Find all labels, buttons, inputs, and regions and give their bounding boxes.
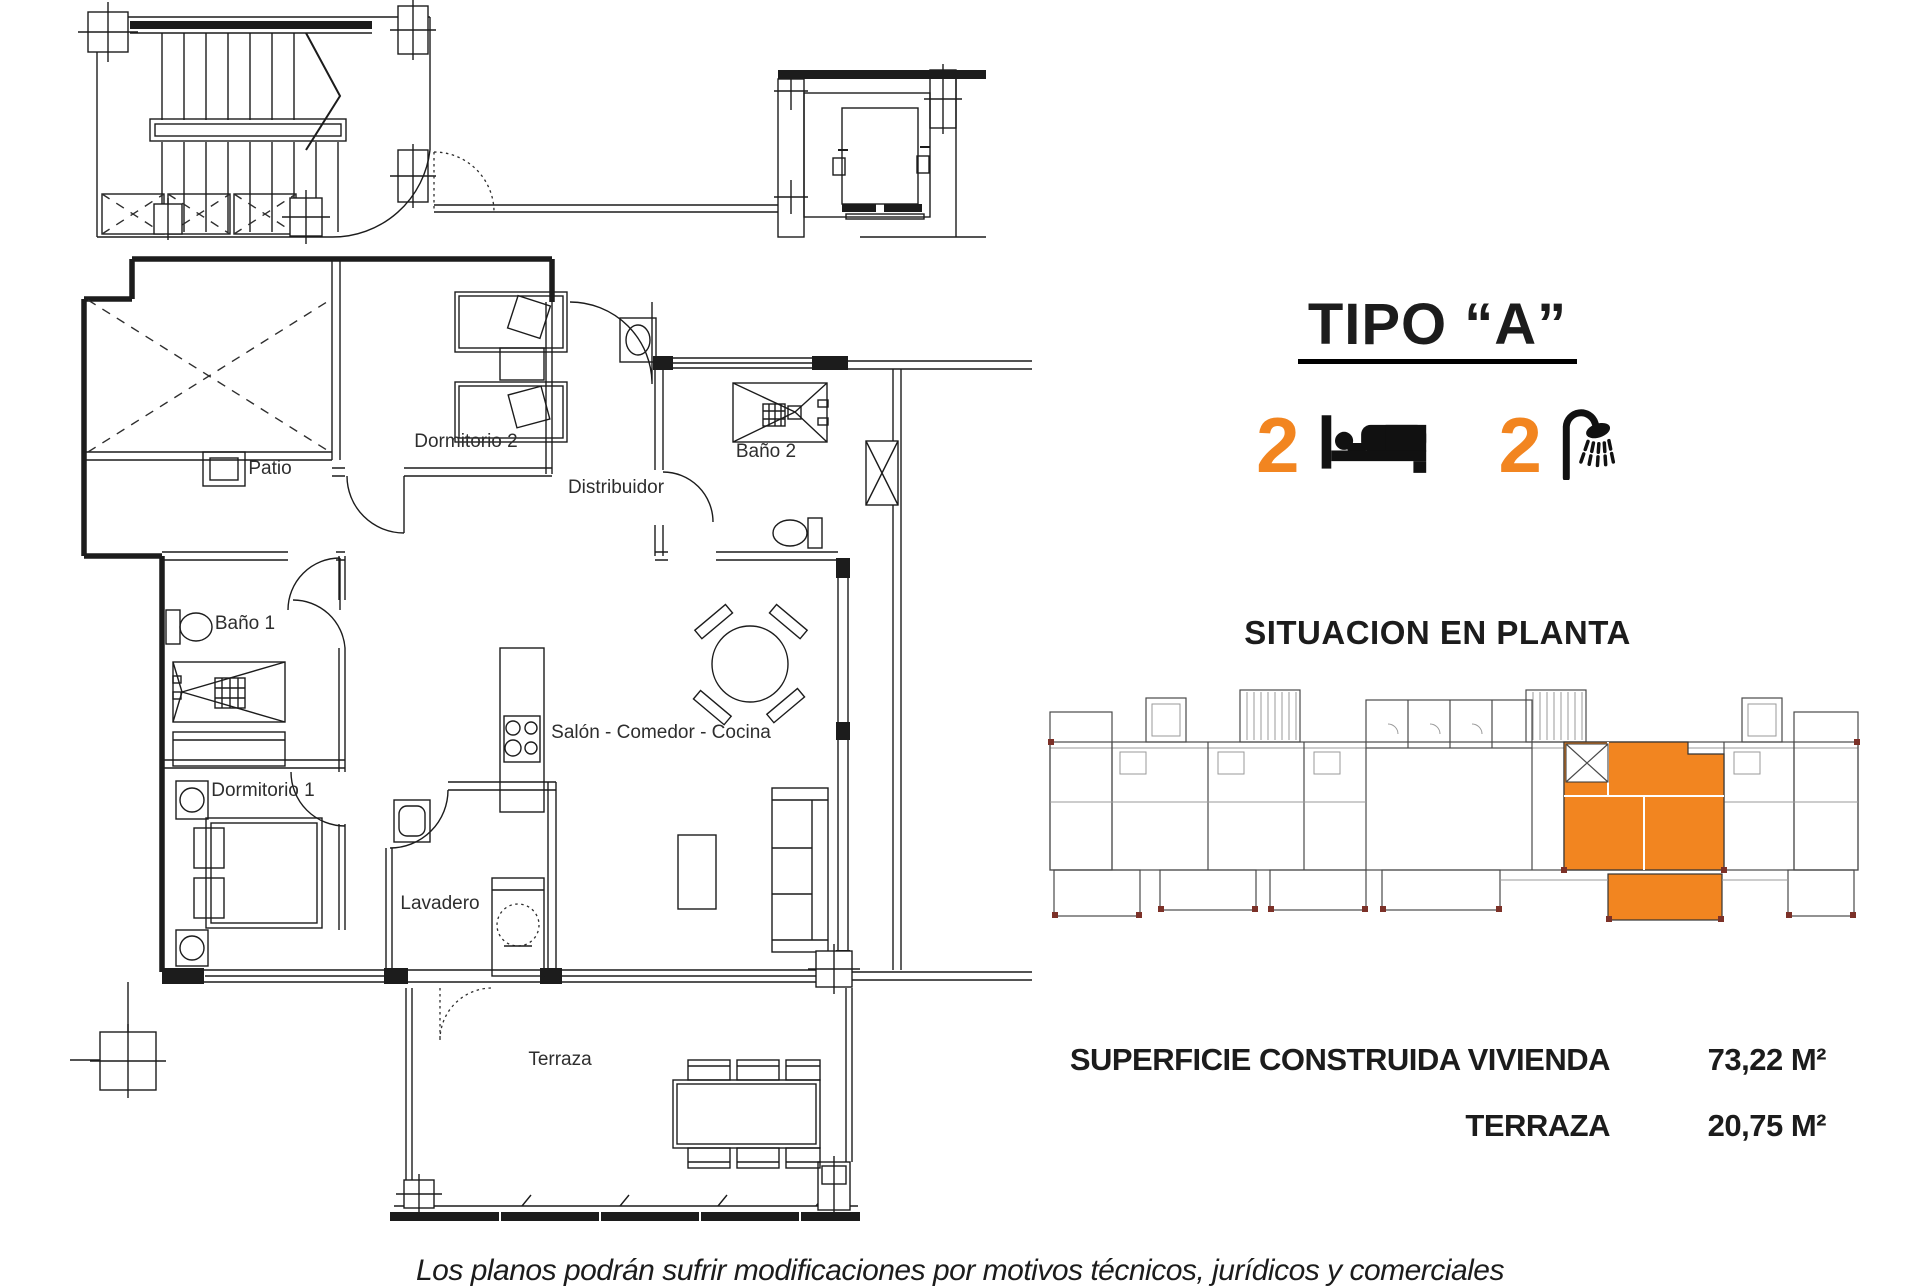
situacion-heading: SITUACION EN PLANTA [1150, 614, 1725, 652]
room-label-terraza: Terraza [528, 1049, 592, 1070]
room-label-patio: Patio [248, 458, 291, 479]
bedrooms-feature: 2 [1256, 411, 1434, 480]
bathrooms-feature: 2 [1499, 406, 1619, 485]
highlighted-terrace [1608, 874, 1722, 920]
room-label-salon: Salón - Comedor - Cocina [551, 722, 771, 743]
bathrooms-count: 2 [1499, 412, 1542, 478]
bathroom2-fixtures [663, 383, 828, 548]
bedroom1-furniture [176, 781, 322, 966]
sofa [772, 788, 828, 952]
surface-label: SUPERFICIE CONSTRUIDA VIVIENDA [886, 1042, 1610, 1078]
shower-icon [1557, 406, 1619, 485]
terrace [390, 944, 860, 1221]
mini-column-marks [1048, 739, 1860, 922]
kitchen-island [500, 648, 544, 812]
patio-room [84, 259, 340, 486]
dining-table [693, 605, 807, 725]
laundry-room [386, 782, 556, 976]
room-label-distribuidor: Distribuidor [568, 477, 665, 498]
room-label-bano2: Baño 2 [736, 441, 796, 462]
surface-table: SUPERFICIE CONSTRUIDA VIVIENDA 73,22 M² … [886, 1042, 1826, 1144]
bedrooms-count: 2 [1256, 412, 1299, 478]
page-title: TIPO “A” [1150, 296, 1725, 364]
elevator [774, 64, 986, 237]
surface-value: 73,22 M² [1610, 1042, 1826, 1078]
highlighted-unit [1564, 742, 1724, 920]
bedroom2-furniture [455, 292, 567, 442]
stairwell [78, 0, 778, 244]
room-label-lavadero: Lavadero [400, 893, 479, 914]
disclaimer-text: Los planos podrán sufrir modificaciones … [0, 1254, 1920, 1288]
room-label-dormitorio1: Dormitorio 1 [211, 780, 314, 801]
mini-staircase [1240, 690, 1586, 742]
column-marker [78, 0, 436, 244]
surface-value: 20,75 M² [1610, 1108, 1826, 1144]
room-label-bano1: Baño 1 [215, 613, 275, 634]
unit-type-title: TIPO “A” [1298, 296, 1577, 364]
situacion-plan [1048, 684, 1860, 946]
unit-features: 2 2 [1150, 406, 1725, 485]
column-marker [70, 982, 166, 1098]
coffee-table [678, 835, 716, 909]
room-label-dormitorio2: Dormitorio 2 [414, 431, 517, 452]
bed-icon [1315, 411, 1435, 480]
floor-plan: Patio Dormitorio 2 Baño 2 Distribuidor B… [0, 0, 1040, 1280]
surface-label: TERRAZA [886, 1108, 1610, 1144]
